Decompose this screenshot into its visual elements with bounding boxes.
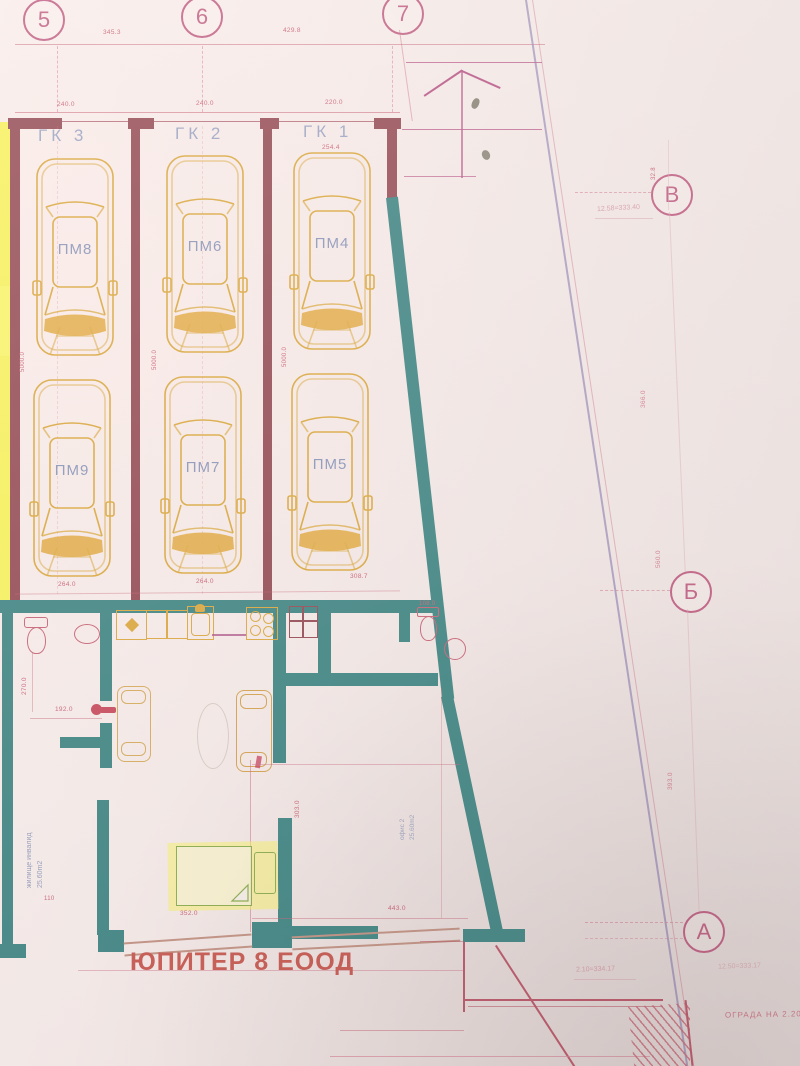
sketch-line	[404, 176, 476, 177]
dim-label: 352.0	[180, 910, 198, 917]
dim-label: 270.0	[21, 677, 28, 695]
burner-icon	[263, 613, 274, 624]
kitchen-sink-icon	[187, 606, 214, 640]
sketch-line	[463, 942, 465, 1012]
dimension-line	[32, 652, 33, 712]
axis-bubble-6: 6	[181, 0, 223, 38]
sketch-line	[420, 941, 464, 942]
parking-spot-label: ПМ7	[160, 459, 246, 476]
dim-label: 264.0	[58, 581, 76, 588]
wall-segment	[10, 118, 20, 602]
dim-label: 366.0	[640, 390, 647, 408]
wall-segment	[286, 673, 438, 686]
grid-line	[668, 140, 669, 210]
axis-label: 7	[397, 1, 409, 27]
room-label-bedroom: жилище инвалид25.60m2	[24, 833, 46, 889]
cushion	[240, 694, 267, 709]
wall-pier	[98, 930, 124, 952]
arrow-wing	[424, 69, 463, 96]
dim-label: 192.0	[55, 706, 73, 713]
dim-label: 240.0	[57, 101, 75, 108]
dim-label: 240.0	[196, 100, 214, 107]
note-underline	[574, 979, 636, 980]
dim-label: 5000.0	[282, 347, 288, 367]
wall-segment	[441, 695, 503, 932]
dim-label: 303.0	[294, 800, 301, 818]
dim-label: 345.3	[103, 29, 121, 36]
sketch-line	[406, 62, 542, 63]
wall-segment	[399, 600, 410, 642]
garage-label: ГК 1	[303, 122, 352, 142]
axis-label: 5	[38, 7, 50, 33]
counter-line	[212, 634, 247, 636]
dimension-line	[441, 688, 442, 918]
dim-label: 443.0	[388, 905, 406, 912]
faucet-icon	[195, 604, 205, 612]
burner-icon	[250, 625, 261, 636]
table-icon	[197, 703, 229, 769]
dim-label: 5000.0	[152, 350, 158, 370]
stairs-hatch	[628, 1003, 690, 1066]
dim-label: 32.8	[651, 167, 657, 180]
axis-bubble-v: В	[651, 174, 693, 216]
sink-basin	[191, 613, 210, 636]
stove-icon	[246, 607, 278, 640]
wall-segment	[387, 118, 397, 206]
sketch-line	[463, 999, 663, 1001]
kitchen-counter-icon	[166, 610, 188, 639]
cushion	[121, 742, 146, 756]
parking-spot: ПМ8	[32, 155, 118, 359]
wall-segment	[100, 613, 112, 701]
axis-bubble-7: 7	[382, 0, 424, 35]
parking-spot-label: ПМ5	[287, 456, 373, 473]
pencil-smudge	[470, 97, 480, 110]
arrow-wing	[462, 70, 501, 88]
hotplate-icon	[125, 618, 139, 632]
dimension-line	[252, 764, 460, 765]
kitchen-counter-icon	[146, 610, 168, 639]
round-basin-icon	[444, 638, 466, 660]
parking-spot: ПМ9	[29, 376, 115, 580]
washbasin-icon	[74, 624, 100, 644]
axis-leader	[575, 192, 651, 193]
cabinet-line	[302, 607, 304, 637]
toilet-bowl-icon	[27, 627, 46, 654]
level-note: 12.50=333.17	[718, 962, 761, 970]
sketch-line	[340, 1030, 464, 1031]
axis-label: Б	[684, 579, 698, 605]
property-boundary-line	[532, 0, 694, 1066]
company-watermark: ЮПИТЕР 8 ЕООД	[130, 948, 354, 977]
parking-spot: ПМ5	[287, 370, 373, 574]
cushion	[121, 690, 146, 704]
parking-spot: ПМ7	[160, 373, 246, 577]
room-area: 25.60m2	[35, 833, 46, 889]
grid-line	[669, 212, 686, 572]
sketch-line	[461, 70, 463, 178]
dimension-line	[30, 718, 102, 719]
wall-segment	[0, 600, 436, 613]
axis-bubble-5: 5	[23, 0, 65, 41]
dim-label: 393.0	[667, 772, 674, 790]
property-boundary-line	[525, 0, 688, 1066]
dimension-line	[15, 590, 400, 594]
room-area: 25.60m2	[408, 815, 418, 840]
cabinet-icon	[289, 606, 318, 638]
level-note: 2.10=334.17	[576, 965, 615, 973]
grid-line	[392, 46, 393, 112]
nightstand-icon	[254, 852, 276, 894]
burner-icon	[263, 626, 274, 637]
room-name: жилище инвалид	[24, 833, 35, 889]
dim-label: 308.7	[350, 573, 368, 580]
wall-segment	[263, 118, 272, 602]
room-label-office: офис 225.60m2	[398, 815, 419, 840]
sketch-line	[402, 129, 542, 130]
wall-segment	[463, 929, 525, 942]
burner-icon	[250, 611, 261, 622]
wall-pier	[252, 922, 292, 948]
axis-leader	[600, 590, 670, 591]
axis-label: В	[665, 182, 680, 208]
wall-segment	[60, 737, 100, 748]
dim-label: 220.0	[325, 99, 343, 106]
axis-label: А	[697, 919, 712, 945]
garage-label: ГК 2	[175, 124, 224, 144]
floor-plan-photo: 5 6 7 345.3 429.8 240.0 240.0 220.0 ГК 3…	[0, 0, 800, 1066]
dim-label: 560.0	[655, 550, 662, 568]
wall-pier	[0, 944, 26, 958]
axis-leader	[585, 938, 683, 939]
armchair-icon	[117, 686, 151, 762]
dim-label: 264.0	[196, 578, 214, 585]
note-underline	[595, 218, 653, 219]
parking-spot-label: ПМ4	[289, 235, 375, 252]
axis-leader	[585, 922, 683, 923]
wall-segment	[2, 613, 13, 958]
parking-spot-label: ПМ6	[162, 238, 248, 255]
door-leaf-icon	[100, 707, 116, 713]
pencil-smudge	[481, 149, 491, 161]
axis-label: 6	[196, 4, 208, 30]
dim-label: 110	[44, 896, 54, 902]
blanket-fold-icon	[230, 883, 250, 903]
fence-note: ОГРАДА НА 2.20	[725, 1009, 800, 1019]
level-note: 12.58=333.40	[597, 204, 640, 213]
wall-segment	[100, 723, 112, 768]
wall-segment	[131, 118, 140, 602]
parking-spot-label: ПМ8	[32, 241, 118, 258]
parking-spot-label: ПМ9	[29, 462, 115, 479]
grid-line	[687, 609, 700, 912]
axis-bubble-a: А	[683, 911, 725, 953]
axis-bubble-b: Б	[670, 571, 712, 613]
dim-label: 429.8	[283, 27, 301, 34]
dimension-line	[15, 112, 400, 113]
kitchen-counter-icon	[116, 610, 147, 640]
wall-segment	[97, 800, 109, 935]
parking-spot: ПМ4	[289, 149, 375, 353]
room-name: офис 2	[398, 815, 408, 840]
dimension-line	[15, 44, 545, 45]
toilet-bowl-icon	[420, 616, 437, 641]
parking-spot: ПМ6	[162, 152, 248, 356]
dim-label: 108.0	[419, 601, 436, 607]
garage-label: ГК 3	[38, 126, 87, 146]
cabinet-line	[290, 620, 317, 622]
sofa-icon	[236, 690, 272, 772]
dimension-line	[252, 918, 468, 919]
sketch-line	[330, 1056, 650, 1057]
dim-label: 5000.0	[20, 352, 26, 372]
